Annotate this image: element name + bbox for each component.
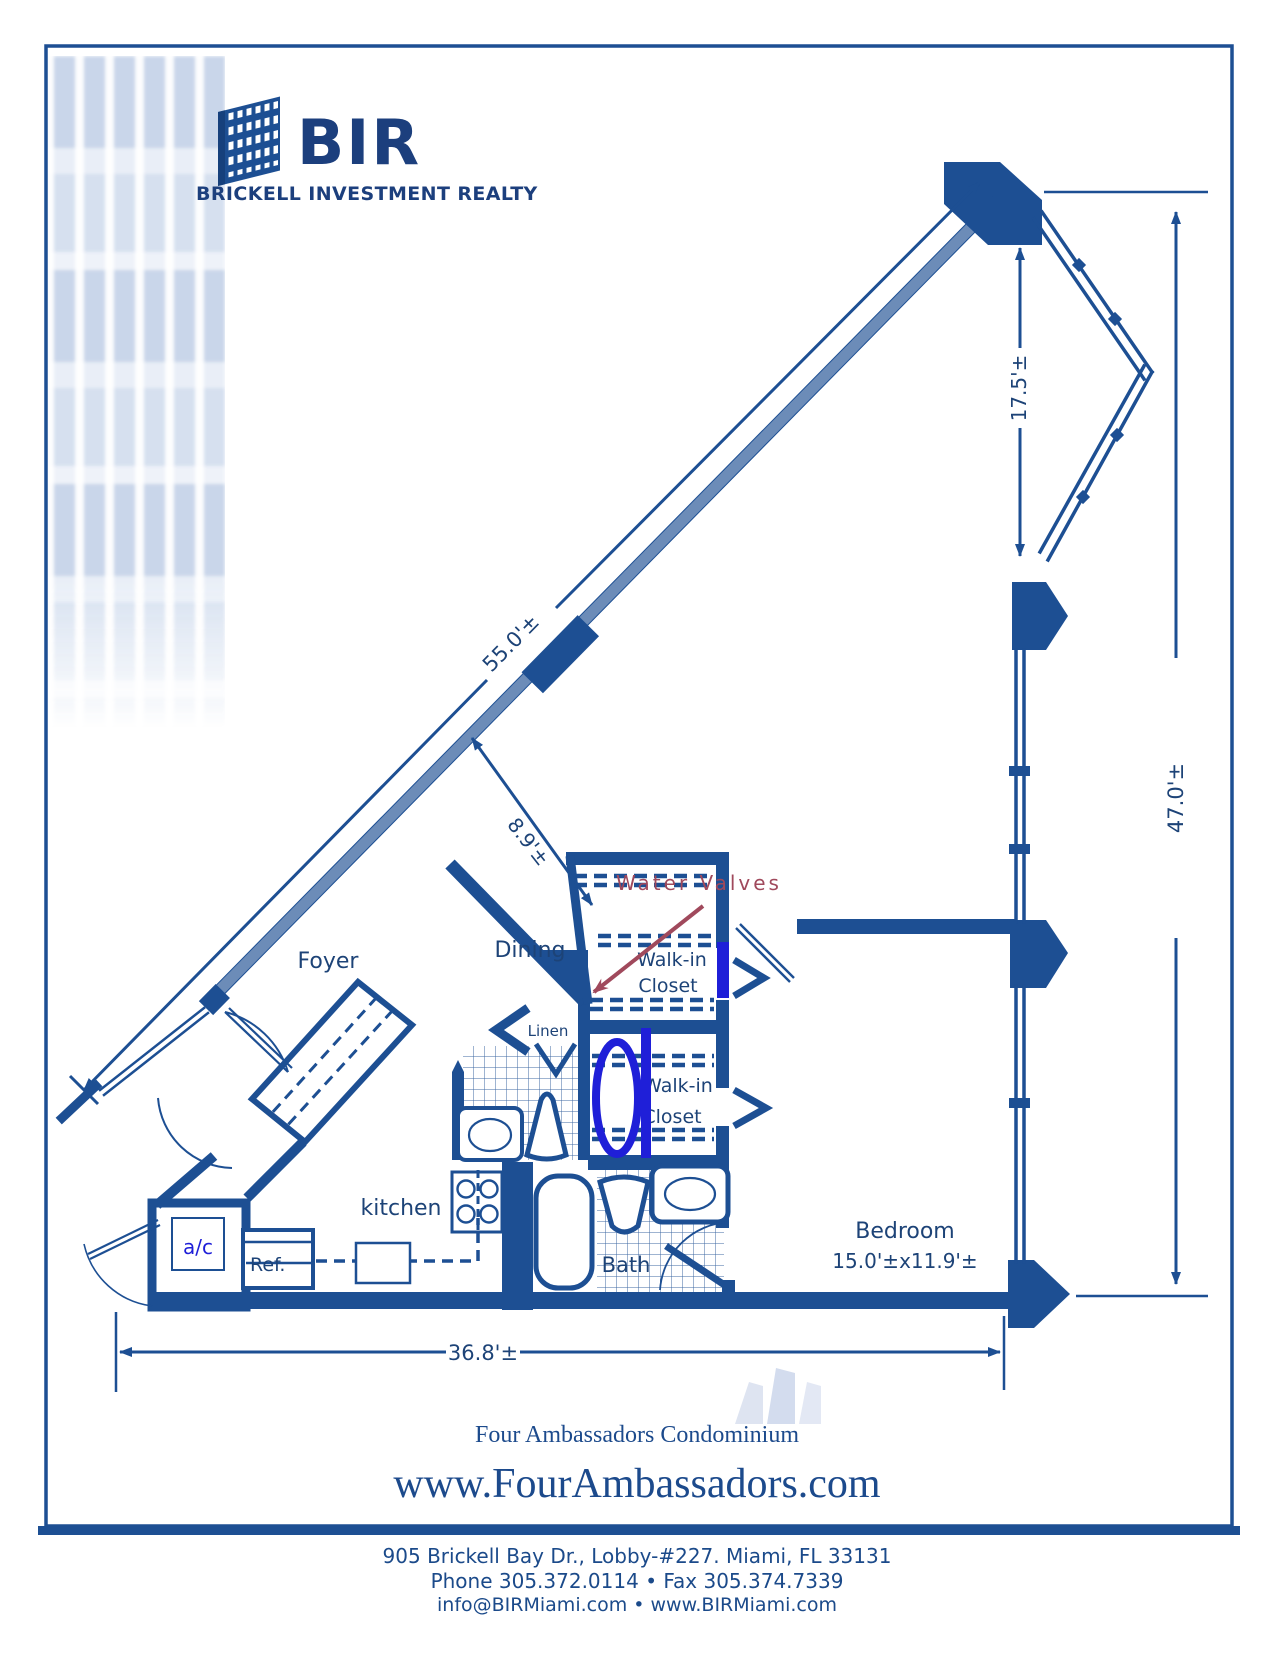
page-frame	[38, 46, 1240, 1535]
dim-right-side: 47.0'±	[1164, 763, 1188, 833]
towers-watermark-icon	[735, 1368, 821, 1424]
water-valves-label: Water Valves	[616, 871, 782, 895]
bathtub	[536, 1176, 592, 1288]
website-link[interactable]: www.FourAmbassadors.com	[393, 1461, 881, 1507]
blue-marker-bar-2	[641, 1028, 651, 1158]
dim-upper-right: 17.5'±	[1007, 355, 1031, 422]
label-ref: Ref.	[250, 1254, 285, 1276]
logo-abbr: BIR	[297, 106, 421, 179]
dim-bottom: 36.8'±	[448, 1341, 518, 1365]
label-bedroom: Bedroom	[855, 1219, 955, 1244]
label-bedroom-size: 15.0'±x11.9'±	[832, 1249, 977, 1273]
building-name: Four Ambassadors Condominium	[475, 1422, 799, 1448]
label-closet2-line2: Closet	[642, 1106, 701, 1128]
label-ac: a/c	[183, 1235, 213, 1259]
label-closet1-line2: Closet	[638, 975, 697, 997]
label-closet2-line1: Walk-in	[643, 1075, 713, 1097]
label-closet1-line1: Walk-in	[637, 949, 707, 971]
bir-building-icon	[218, 97, 280, 186]
label-bath: Bath	[602, 1253, 651, 1277]
footer-email-web[interactable]: info@BIRMiami.com • www.BIRMiami.com	[437, 1594, 837, 1616]
footer: Four Ambassadors Condominium www.FourAmb…	[383, 1368, 892, 1616]
label-linen: Linen	[528, 1022, 569, 1040]
footer-phone-fax: Phone 305.372.0114 • Fax 305.374.7339	[431, 1569, 844, 1593]
logo-tagline: BRICKELL INVESTMENT REALTY	[196, 183, 538, 205]
footer-address: 905 Brickell Bay Dr., Lobby-#227. Miami,…	[383, 1544, 892, 1568]
blue-marker-bar-1	[717, 942, 729, 998]
linen-door	[496, 1008, 528, 1052]
label-kitchen: kitchen	[361, 1196, 442, 1221]
label-dining: Dining	[494, 938, 565, 963]
floorplan-canvas: BIR BRICKELL INVESTMENT REALTY	[0, 0, 1275, 1672]
closet1-door	[734, 960, 764, 996]
bir-logo: BIR BRICKELL INVESTMENT REALTY	[196, 97, 538, 205]
label-foyer: Foyer	[298, 949, 360, 974]
flyer-page: BIR BRICKELL INVESTMENT REALTY	[0, 0, 1275, 1672]
closet2-door	[734, 1090, 766, 1126]
